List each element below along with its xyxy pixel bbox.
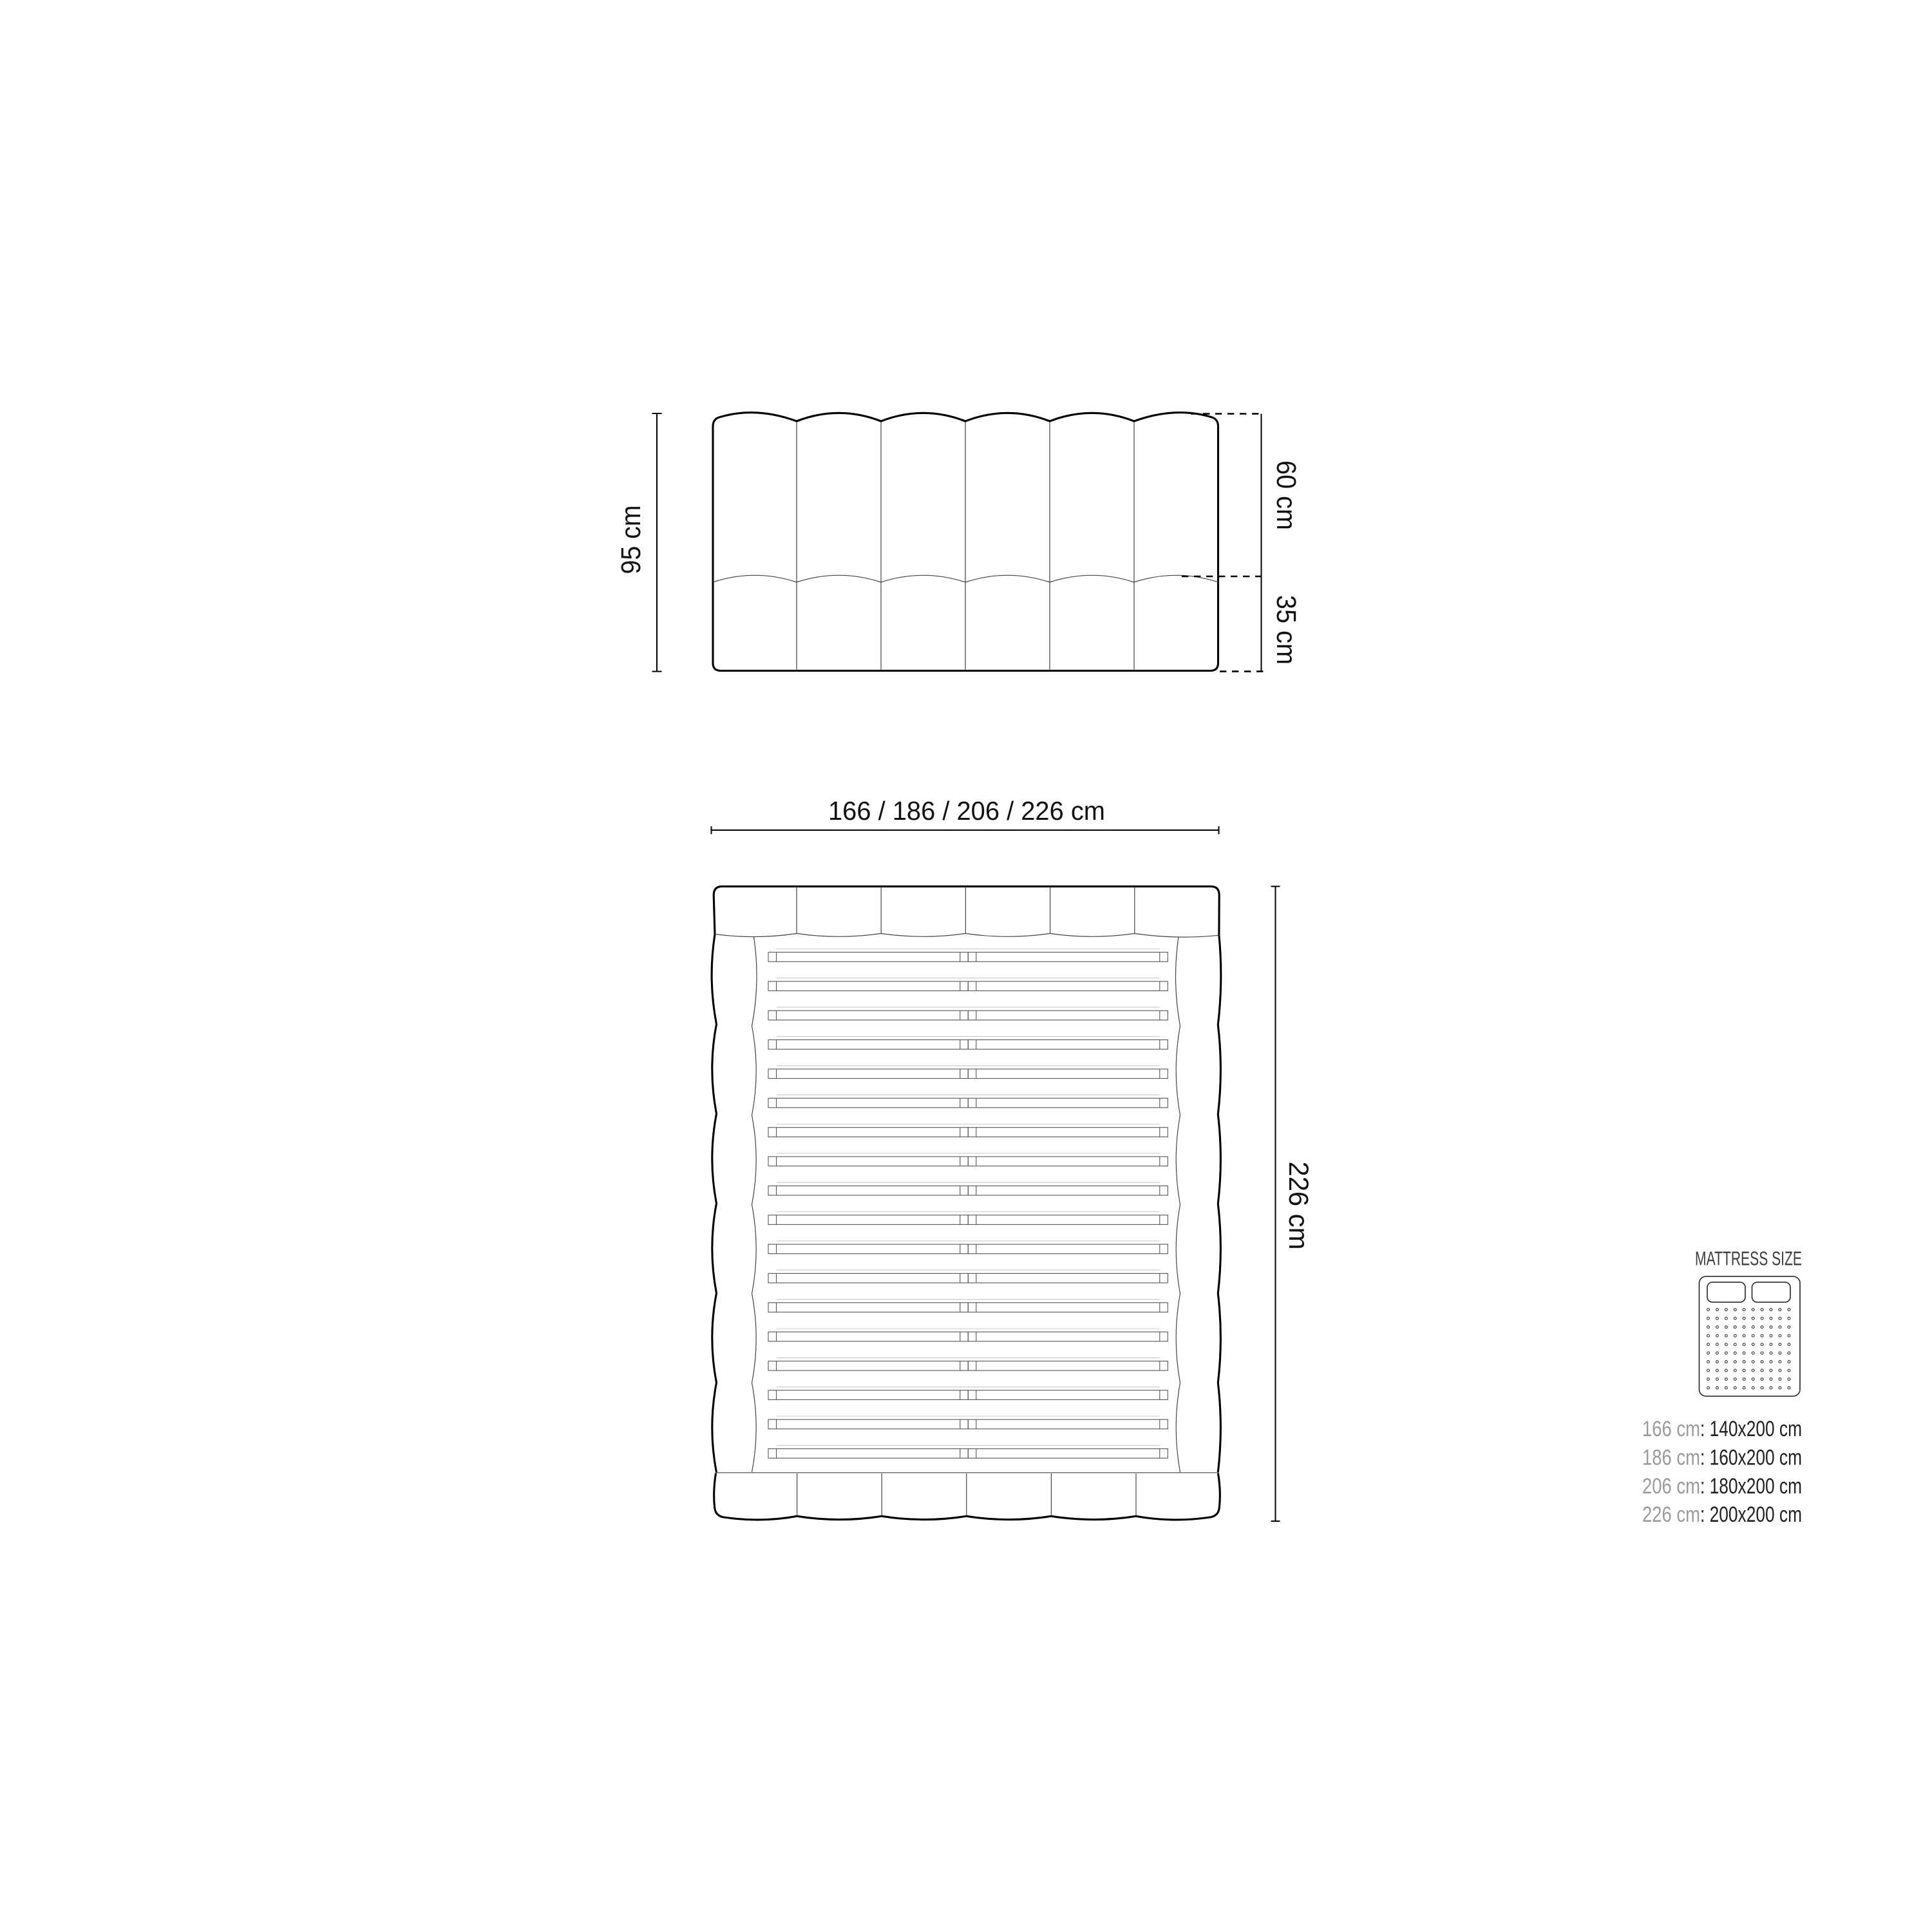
svg-text:35 cm: 35 cm	[1271, 595, 1301, 665]
svg-text:166 / 186 / 206 / 226 cm: 166 / 186 / 206 / 226 cm	[828, 796, 1105, 826]
svg-text:MATTRESS SIZE: MATTRESS SIZE	[1695, 1248, 1802, 1270]
svg-text:60 cm: 60 cm	[1271, 460, 1301, 530]
svg-text:: 180x200 cm: : 180x200 cm	[1700, 1474, 1802, 1499]
svg-text:: 200x200 cm: : 200x200 cm	[1700, 1502, 1802, 1527]
svg-text:: 140x200 cm: : 140x200 cm	[1700, 1417, 1802, 1441]
svg-text:: 160x200 cm: : 160x200 cm	[1700, 1445, 1802, 1470]
svg-text:95 cm: 95 cm	[616, 506, 647, 574]
svg-text:226 cm: 226 cm	[1642, 1502, 1700, 1527]
svg-text:206 cm: 206 cm	[1642, 1474, 1700, 1499]
svg-text:186 cm: 186 cm	[1642, 1445, 1700, 1470]
svg-text:226 cm: 226 cm	[1283, 1162, 1313, 1250]
svg-text:166 cm: 166 cm	[1642, 1417, 1700, 1441]
